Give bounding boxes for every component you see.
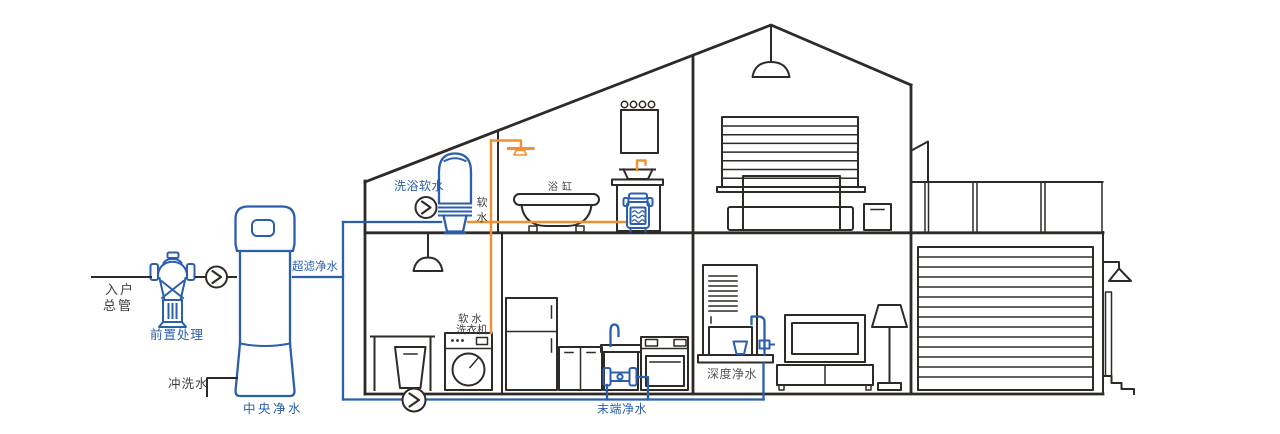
shower-supply-pipe [491, 141, 521, 148]
flush-water-pipe [207, 378, 237, 396]
tv-stand [777, 365, 873, 390]
label-inlet-main-line2: 总管 [103, 298, 133, 313]
cabinet-vent-slats [709, 276, 737, 311]
diagram-canvas: 入户 总管 前置处理 冲洗水 中央净水 超滤净水 洗浴软水 软 水 浴缸 软 水… [0, 0, 1280, 434]
bed-mattress [728, 207, 853, 230]
terrace-rail-posts [925, 182, 1102, 232]
label-pre-treatment: 前置处理 [150, 327, 204, 342]
whole-house-water-system-diagram: 入户 总管 前置处理 冲洗水 中央净水 超滤净水 洗浴软水 软 水 浴缸 软 水… [0, 0, 1280, 434]
kitchen [506, 298, 688, 390]
label-bath-soft-water: 洗浴软水 [394, 179, 444, 193]
garage-door-slats [918, 257, 1093, 377]
label-washer-line2: 洗衣机 [456, 323, 488, 336]
undersink-purifier-device [624, 194, 653, 232]
bed-headboard [743, 176, 840, 229]
purifier-display [252, 220, 274, 236]
washer-drum [453, 354, 485, 386]
kitchen-faucet-icon [611, 325, 619, 347]
shower-nozzle-icon [514, 151, 527, 156]
label-bathtub: 浴缸 [548, 180, 576, 193]
label-soft-water-char2: 水 [477, 211, 488, 224]
roof-outline [365, 25, 911, 182]
television [785, 315, 865, 362]
label-inlet-main-line1: 入户 [105, 282, 135, 297]
label-ultrafiltration: 超滤净水 [292, 259, 338, 273]
label-soft-water-char1: 软 [477, 195, 488, 209]
label-flush-water: 冲洗水 [168, 376, 209, 391]
laundry-room [371, 233, 492, 390]
bathtub-rim [514, 194, 599, 205]
window-sill [717, 187, 865, 192]
pre-filter-device [151, 253, 195, 328]
garage-door-frame [918, 247, 1093, 390]
central-purifier-device [236, 207, 295, 397]
terrace-corner-vent [912, 142, 929, 183]
laundry-basket [395, 347, 426, 388]
flow-arrow-icon [206, 267, 227, 288]
label-deep-purification: 深度净水 [707, 366, 757, 381]
flow-arrow-icon [416, 197, 437, 218]
dispenser-counter [698, 355, 773, 363]
bedroom [717, 25, 891, 230]
outdoor-steps [1103, 376, 1134, 394]
wall-lamp-icon [1109, 269, 1131, 282]
mirror [621, 110, 658, 153]
flow-arrow-icon [403, 389, 426, 412]
label-terminal-purification: 末端净水 [597, 402, 647, 416]
laundry-pendant-lamp-icon [414, 258, 443, 272]
floor-lamp-icon [872, 305, 907, 390]
bathtub-foot-left [529, 226, 537, 232]
kitchen-cabinets [559, 347, 602, 390]
terminal-purifier-device [604, 368, 637, 386]
pendant-lamp-icon [753, 62, 790, 77]
wall-lamp-bracket [1103, 262, 1119, 269]
refrigerator [506, 298, 557, 390]
blind-slats [722, 126, 858, 178]
nightstand [864, 204, 891, 230]
water-softener-device [439, 154, 471, 234]
label-central-purification: 中央净水 [243, 401, 303, 416]
laundry-table [371, 337, 434, 391]
washing-machine [445, 333, 492, 390]
bathtub-foot-right [576, 226, 584, 232]
mirror-lights-icon [621, 101, 654, 107]
downspout [1106, 292, 1112, 376]
